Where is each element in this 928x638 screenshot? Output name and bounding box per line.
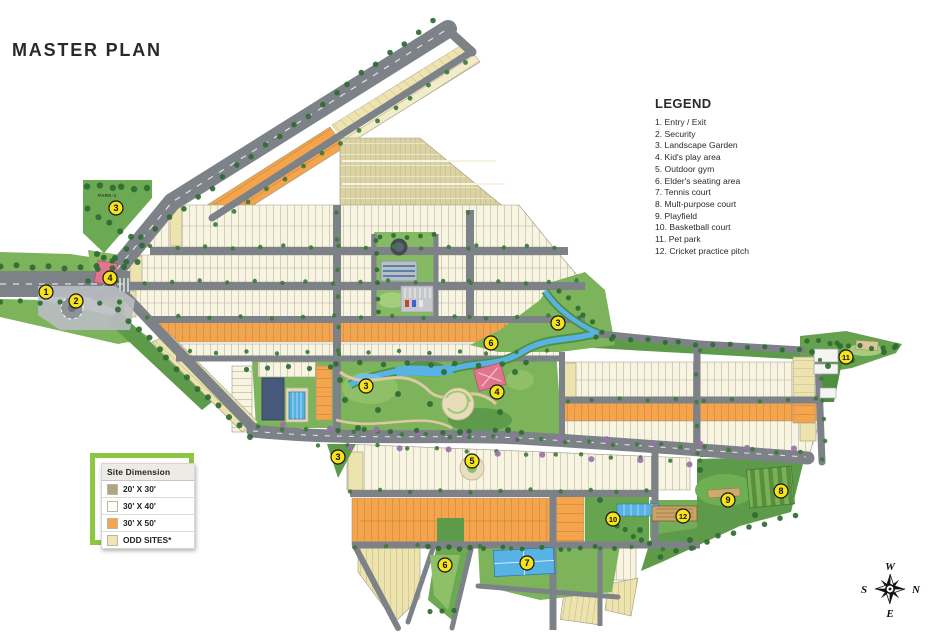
svg-text:2: 2	[73, 296, 78, 306]
svg-text:3: 3	[555, 318, 560, 328]
svg-text:3: 3	[335, 452, 340, 462]
amenity-marker-2: 2	[69, 294, 83, 308]
site-dimension-row: 30' X 40'	[102, 498, 194, 515]
svg-text:8: 8	[778, 486, 783, 496]
svg-text:6: 6	[442, 560, 447, 570]
amenity-marker-11: 11	[839, 350, 853, 364]
svg-text:3: 3	[363, 381, 368, 391]
park-label: PARK-1	[98, 193, 117, 198]
site-dimension-row: 30' X 50'	[102, 515, 194, 532]
svg-text:12: 12	[679, 512, 687, 521]
svg-text:1: 1	[43, 287, 48, 297]
svg-text:9: 9	[725, 495, 730, 505]
svg-text:4: 4	[107, 273, 112, 283]
amenity-marker-3: 3	[331, 450, 345, 464]
svg-text:11: 11	[842, 353, 850, 362]
site-dimension-label: 30' X 40'	[123, 501, 156, 511]
site-dimension-label: 20' X 30'	[123, 484, 156, 494]
compass-bottom-label: E	[885, 608, 893, 620]
svg-text:4: 4	[494, 387, 499, 397]
site-dimension-row: 20' X 30'	[102, 481, 194, 498]
compass-top-label: W	[885, 561, 896, 573]
amenity-marker-3: 3	[359, 379, 373, 393]
site-dimension-swatch	[107, 535, 118, 546]
amenity-marker-5: 5	[465, 454, 479, 468]
svg-text:3: 3	[113, 203, 118, 213]
amenity-marker-6: 6	[438, 558, 452, 572]
amenity-marker-3: 3	[109, 201, 123, 215]
amenity-marker-12: 12	[676, 509, 690, 523]
compass-left-label: S	[861, 584, 867, 596]
site-dimension-swatch	[107, 501, 118, 512]
compass-rose: W N E S	[861, 561, 921, 620]
svg-text:5: 5	[469, 456, 474, 466]
amenity-marker-1: 1	[39, 285, 53, 299]
amenity-marker-4: 4	[103, 271, 117, 285]
svg-text:10: 10	[609, 515, 617, 524]
site-dimension-swatch	[107, 484, 118, 495]
amenity-marker-6: 6	[484, 336, 498, 350]
amenity-marker-9: 9	[721, 493, 735, 507]
amenity-marker-10: 10	[606, 512, 620, 526]
svg-text:7: 7	[524, 558, 529, 568]
site-dimension-swatch	[107, 518, 118, 529]
site-dimension-box: Site Dimension 20' X 30'30' X 40'30' X 5…	[90, 453, 194, 545]
site-dimension-label: 30' X 50'	[123, 518, 156, 528]
amenity-marker-8: 8	[774, 484, 788, 498]
svg-text:6: 6	[488, 338, 493, 348]
site-dimension-label: ODD SITES*	[123, 535, 171, 545]
amenity-marker-3: 3	[551, 316, 565, 330]
amenity-marker-7: 7	[520, 556, 534, 570]
compass-right-label: N	[911, 584, 921, 596]
site-dimension-rows: 20' X 30'30' X 40'30' X 50'ODD SITES*	[102, 481, 194, 548]
site-dimension-header: Site Dimension	[102, 464, 194, 481]
master-plan-page: MASTER PLAN LEGEND 1. Entry / Exit2. Sec…	[0, 0, 928, 638]
site-dimension-row: ODD SITES*	[102, 532, 194, 548]
site-dimension-card: Site Dimension 20' X 30'30' X 40'30' X 5…	[101, 463, 195, 549]
amenity-marker-4: 4	[490, 385, 504, 399]
